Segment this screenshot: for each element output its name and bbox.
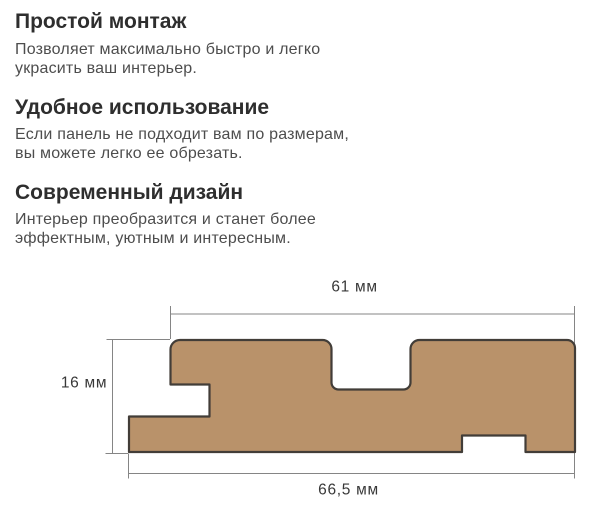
svg-text:16 мм: 16 мм <box>61 375 107 392</box>
svg-text:66,5 мм: 66,5 мм <box>318 481 379 498</box>
svg-text:61 мм: 61 мм <box>331 278 377 295</box>
